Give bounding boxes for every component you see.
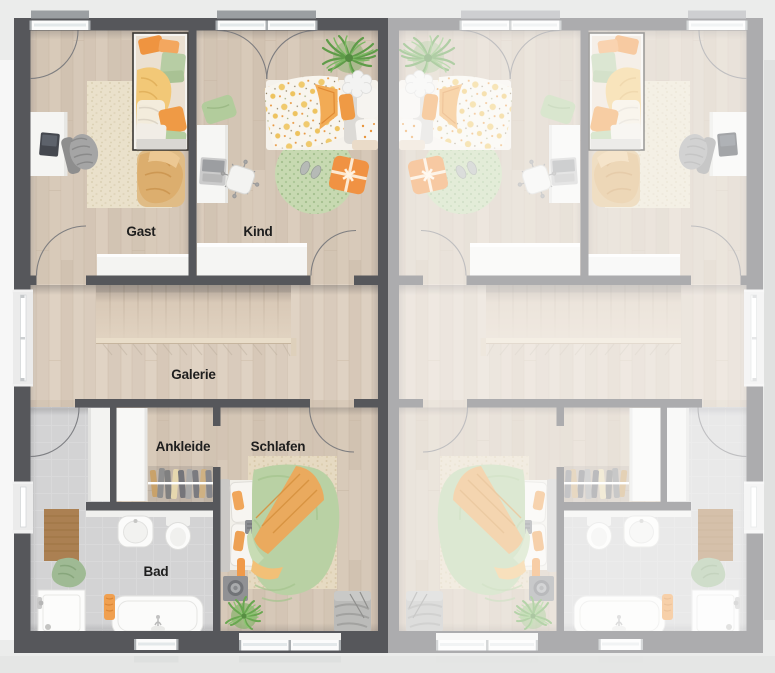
svg-text:Schlafen: Schlafen [251,439,306,454]
svg-text:Gast: Gast [126,224,156,239]
svg-text:Bad: Bad [144,564,169,579]
svg-text:Ankleide: Ankleide [156,439,211,454]
svg-text:Kind: Kind [243,224,272,239]
svg-text:Galerie: Galerie [171,367,216,382]
